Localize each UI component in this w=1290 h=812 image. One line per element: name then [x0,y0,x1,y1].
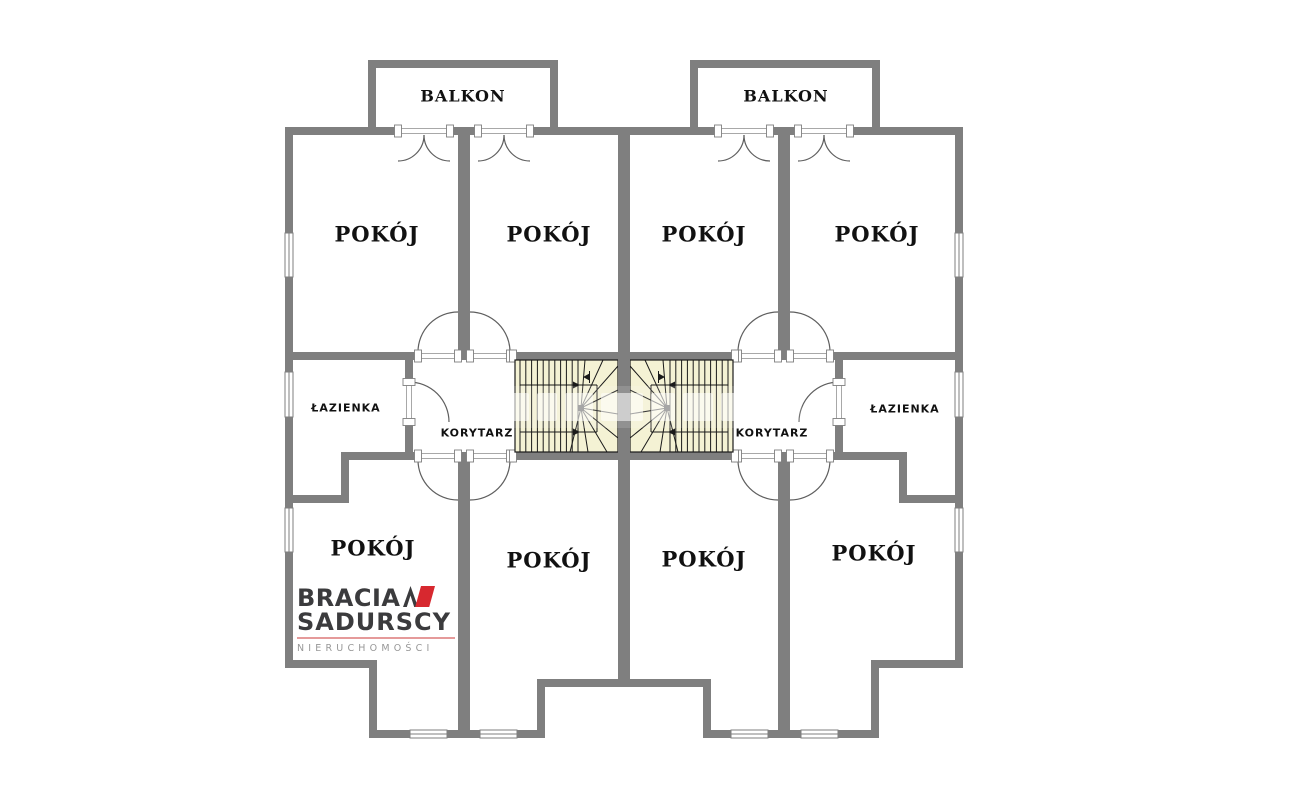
floorplan-drawing [0,0,1290,812]
room-label-top-2: POKÓJ [506,222,591,247]
corridor-label-left: KORYTARZ [441,427,514,440]
room-label-top-4: POKÓJ [834,222,919,247]
room-label-bottom-3: POKÓJ [661,547,746,572]
logo-subtitle: NIERUCHOMOŚCI [297,643,459,654]
balcony-label-left: BALKON [420,87,505,106]
floorplan-canvas: BALKON BALKON POKÓJ POKÓJ POKÓJ POKÓJ PO… [0,0,1290,812]
room-label-bottom-1: POKÓJ [330,536,415,561]
party-wall [618,127,630,687]
balcony-label-right: BALKON [743,87,828,106]
room-label-bottom-4: POKÓJ [831,541,916,566]
room-label-bottom-2: POKÓJ [506,548,591,573]
corridor-label-right: KORYTARZ [736,427,809,440]
agency-logo: BRACIA SADURSCY NIERUCHOMOŚCI [297,586,459,654]
logo-roof-icon [403,586,435,607]
logo-divider [297,637,455,639]
room-label-top-1: POKÓJ [334,222,419,247]
bathroom-label-right: ŁAZIENKA [870,403,939,416]
room-label-top-3: POKÓJ [661,222,746,247]
left-staircase [515,360,618,452]
right-staircase [630,360,733,452]
logo-text-line2: SADURSCY [297,610,459,634]
logo-text-line1: BRACIA [297,587,400,609]
bathroom-label-left: ŁAZIENKA [311,402,380,415]
